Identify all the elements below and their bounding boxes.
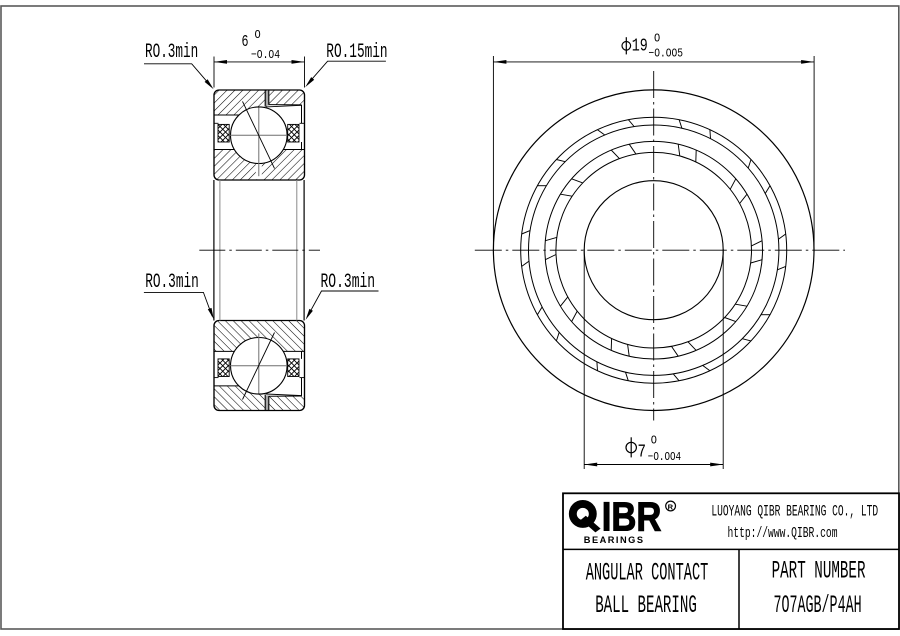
svg-text:LUOYANG QIBR BEARING CO., LTD: LUOYANG QIBR BEARING CO., LTD (711, 503, 878, 521)
svg-text:BEARINGS: BEARINGS (584, 535, 645, 545)
svg-text:−O.O4: −O.O4 (251, 48, 280, 62)
svg-text:O: O (651, 433, 657, 447)
svg-text:7: 7 (638, 441, 647, 463)
svg-text:ANGULAR CONTACT: ANGULAR CONTACT (586, 559, 709, 588)
svg-text:RO.3min: RO.3min (145, 41, 198, 64)
svg-text:http://www.QIBR.com: http://www.QIBR.com (728, 526, 838, 542)
svg-text:−O.OO4: −O.OO4 (648, 450, 681, 464)
svg-text:6: 6 (242, 32, 249, 51)
svg-text:BALL BEARING: BALL BEARING (595, 591, 697, 620)
svg-text:PART NUMBER: PART NUMBER (772, 557, 866, 586)
svg-text:IBR: IBR (602, 494, 662, 540)
svg-text:19: 19 (632, 34, 648, 56)
svg-text:RO.3min: RO.3min (145, 271, 199, 294)
svg-text:O: O (654, 32, 660, 46)
svg-text:O: O (255, 28, 261, 42)
svg-text:−O.OO5: −O.OO5 (649, 47, 684, 61)
svg-text:RO.15min: RO.15min (326, 41, 387, 64)
svg-text:7O7AGB/P4AH: 7O7AGB/P4AH (774, 591, 862, 620)
svg-text:R: R (668, 502, 674, 511)
